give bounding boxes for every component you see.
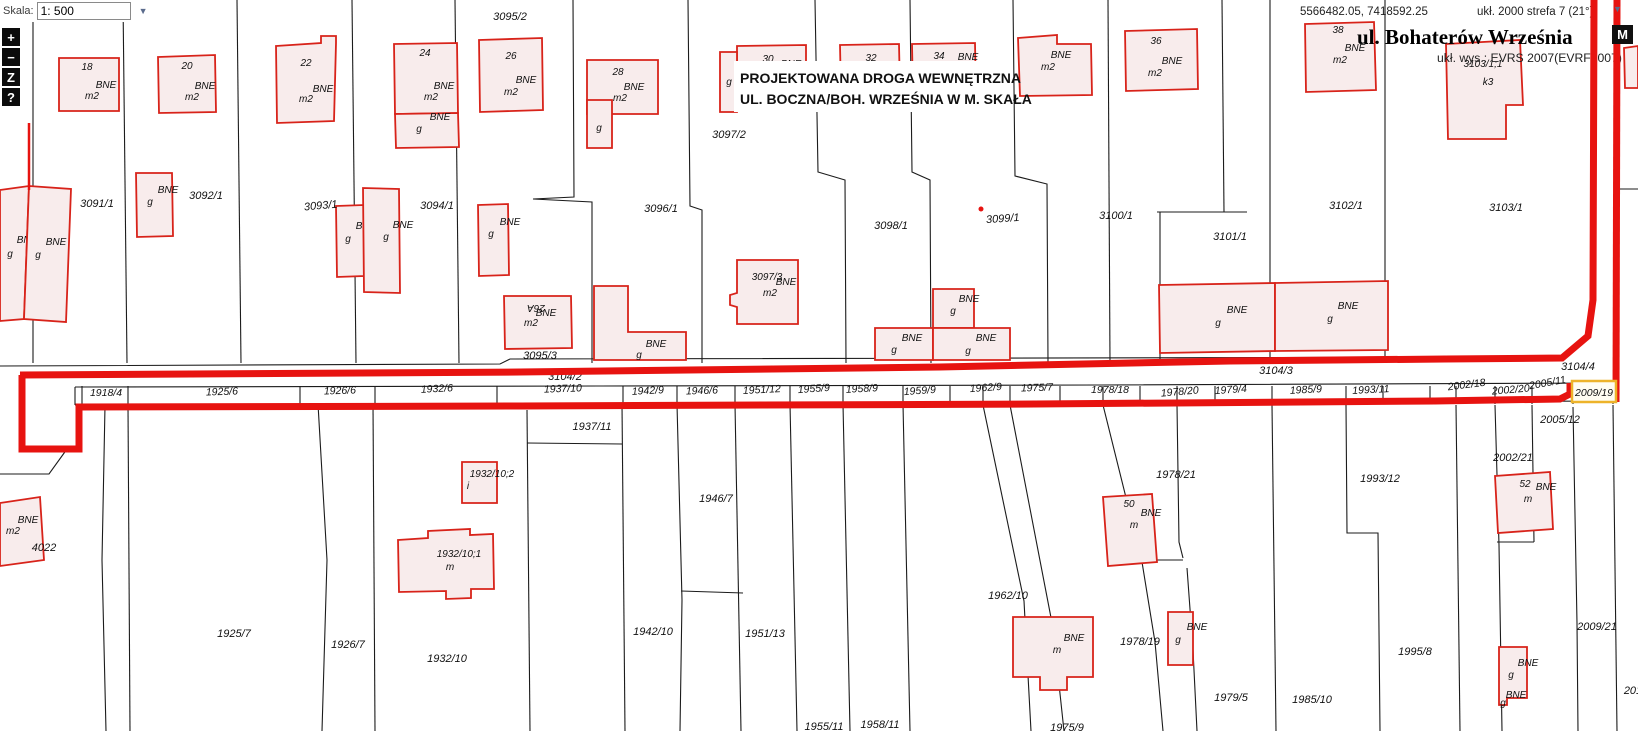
building-label: m [1130,520,1138,531]
parcel-label: 4022 [32,542,56,554]
building-label: 22 [299,58,312,69]
building-label: m2 [763,288,777,299]
parcel-label: 2009/21 [1576,621,1617,633]
map-tool-buttons: + − Z ? [2,28,20,106]
building [136,173,173,237]
building-label: g [345,234,351,245]
parcel-label: 1942/10 [633,626,674,638]
building-label: 20 [180,61,193,72]
zoom-extent-button[interactable]: Z [2,68,20,86]
zoom-in-button[interactable]: + [2,28,20,46]
building-label: g [891,345,897,356]
building-label: BNE [959,294,980,305]
building-label: m2 [1333,55,1347,66]
building-label: BNE [776,277,797,288]
building-label: g [416,124,422,135]
building-label: k3 [1483,77,1494,88]
selected-parcel-label: 2009/19 [1574,387,1613,399]
parcel-label: 1975/9 [1050,722,1084,731]
road-parcel-label: 1959/9 [903,384,936,398]
building-label: m2 [613,93,627,104]
parcel-label: 1951/13 [745,628,786,640]
building-label: g [1175,635,1181,646]
parcel-label: 1995/8 [1398,646,1433,658]
parcel-label: 3097/2 [712,129,746,141]
building-label: BNE [1518,658,1539,669]
building-label: 52 [1519,479,1531,490]
map-coordinates: 5566482.05, 7418592.25 [1300,6,1428,18]
crs-dropdown-arrow[interactable]: ▼ [1613,4,1622,14]
road-parcel-label: 1978/18 [1091,384,1129,396]
building-label: g [147,197,153,208]
building-label: 1932/10;1 [437,549,482,560]
building-label: m2 [424,92,438,103]
map-canvas[interactable]: 18BNEm220BNEm222BNEm224BNEm2BNEg26BNEm22… [0,0,1638,731]
building-label: g [596,123,602,134]
building [1624,46,1638,88]
building [933,328,1010,360]
zoom-out-button[interactable]: − [2,48,20,66]
building-label: 38 [1332,25,1344,36]
parcel-label: 1946/7 [699,493,734,505]
parcel-label: 1978/19 [1120,636,1160,648]
building-label: BNE [1051,50,1072,61]
parcel-label: 1958/11 [861,719,900,731]
help-button[interactable]: ? [2,88,20,106]
road-parcel-label: 1975/7 [1021,381,1055,394]
building-label: 34 [933,51,945,62]
parcel-label: 3095/3 [523,350,558,362]
parcel-label: 1926/7 [331,639,366,651]
building-label: 50 [1123,499,1135,510]
map-viewer: 18BNEm220BNEm222BNEm224BNEm2BNEg26BNEm22… [0,0,1638,731]
parcel-label: 1955/11 [805,721,844,731]
building-label: BNE [902,333,923,344]
building [24,186,71,322]
building-label: BNE [434,81,455,92]
parcel-label: 1925/7 [217,628,252,640]
building-label: BNE [646,339,667,350]
scale-control: Skala: 1: 500 ▼ [0,0,160,22]
building-label: BNE [1338,301,1359,312]
building-label: g [950,306,956,317]
building-label: BNE [1536,482,1557,493]
building-label: g [35,250,41,261]
building [478,204,509,276]
building-label: g [383,232,389,243]
parcel-label: 1985/10 [1292,694,1333,706]
building [1018,35,1092,96]
parcel-label: 1979/5 [1214,692,1249,704]
road-parcel-label: 1958/9 [845,382,878,396]
building-label: 36 [1150,36,1162,47]
building-label: g [965,346,971,357]
building-label: 1932/10;2 [470,469,515,480]
building-label: m2 [85,91,99,102]
road-parcel-label: 1979/4 [1214,383,1247,397]
parcel-label: 1962/10 [988,590,1029,602]
building-label: g [726,77,732,88]
road-parcel-label: 1925/6 [206,385,239,398]
parcel-label: 201 [1623,685,1638,697]
building-label: m2 [6,526,20,537]
scale-label: Skala: [3,5,34,17]
annotation-line1: PROJEKTOWANA DROGA WEWNĘTRZNA [740,70,1021,86]
building-label: m [1053,645,1061,656]
building-label: BNE [536,308,557,319]
building-label: BNE [1064,633,1085,644]
parcel-label: 3104/3 [1259,365,1294,377]
parcel-label: 3094/1 [420,200,454,212]
building-label: g [488,229,494,240]
parcel-label: 3099/1 [986,212,1020,226]
parcel-label: 3102/1 [1329,200,1363,212]
building-label: g [7,249,13,260]
road-parcel-label: 1942/9 [631,384,664,398]
parcel-label: 3104/4 [1561,361,1595,373]
road-parcel-label: 1932/6 [420,382,453,396]
road-parcel-label: 1955/9 [797,382,830,396]
parcel-label: 1937/11 [573,421,612,433]
building-label: BNE [976,333,997,344]
parcel-label: 2002/21 [1492,452,1533,464]
scale-select[interactable]: 1: 500 [37,2,131,20]
building-label: m [1524,494,1532,505]
building-label: BNE [158,185,179,196]
building-label: BNE [96,80,117,91]
building [276,36,336,123]
parcel-label: 3101/1 [1213,231,1247,243]
road-parcel-label: 1962/9 [969,381,1002,395]
road-parcel-label: 1918/4 [90,387,122,399]
building-label: BNE [500,217,521,228]
building-label: BNE [624,82,645,93]
building-label: BNE [313,84,334,95]
red-route [1616,0,1617,402]
road-parcel-label: 1985/9 [1289,383,1322,397]
building-label: m2 [299,94,313,105]
building-label: m2 [504,87,518,98]
building-label: g [1500,698,1506,709]
parcel-label: 3095/2 [493,11,527,23]
building-label: BNE [430,112,451,123]
road-parcel-label: 1951/12 [743,383,782,397]
road-parcel-label: 1926/6 [324,384,357,397]
building-label: 24 [418,48,431,59]
building-label: BNE [1227,305,1248,316]
road-parcel-label: 1937/10 [544,382,583,395]
building-label: BNE [516,75,537,86]
building [363,188,400,293]
parcel-label: 3091/1 [80,198,114,210]
parcel-label: 1993/12 [1360,473,1400,485]
road-parcel-label: 1993/11 [1352,383,1390,397]
building-label: BNE [1141,508,1162,519]
red-dot [979,207,984,212]
building-label: BNE [18,515,39,526]
parcel-label: 2005/12 [1539,414,1580,426]
map-street-name: ul. Bohaterów Września [1357,25,1573,49]
building-label: g [1215,318,1221,329]
parcel-label: 1932/10 [427,653,468,665]
building-label: BNE [393,220,414,231]
building-label: m2 [1148,68,1162,79]
parcel-label: 3092/1 [189,190,223,202]
building-label: m2 [524,318,538,329]
building-label: 18 [81,62,93,73]
building-label: g [636,350,642,361]
building-label: g [1327,314,1333,325]
scale-dropdown-arrow[interactable]: ▼ [139,6,148,16]
parcel-label: 3103/1 [1489,202,1523,214]
parcel-label: 1978/21 [1156,469,1196,481]
annotation-line2: UL. BOCZNA/BOH. WRZEŚNIA W M. SKAŁA [740,90,1032,107]
building-label: 26 [504,51,517,62]
building-label: BNE [1162,56,1183,67]
building-label: m2 [185,92,199,103]
parcel-label: 3100/1 [1099,210,1133,222]
building-label: m [446,562,454,573]
building-label: 28 [611,67,624,78]
building-label: BNE [1506,690,1527,701]
building-label: BNE [195,81,216,92]
parcel-label: 3098/1 [874,220,908,232]
building-label: BNE [46,237,67,248]
measure-button[interactable]: M [1612,25,1633,44]
building-label: m2 [1041,62,1055,73]
map-crs: ukł. 2000 strefa 7 (21°) [1477,6,1594,18]
building-label: g [1508,670,1514,681]
parcel-label: 3096/1 [644,203,678,215]
road-parcel-label: 1946/6 [686,384,719,397]
building-label: BNE [1187,622,1208,633]
